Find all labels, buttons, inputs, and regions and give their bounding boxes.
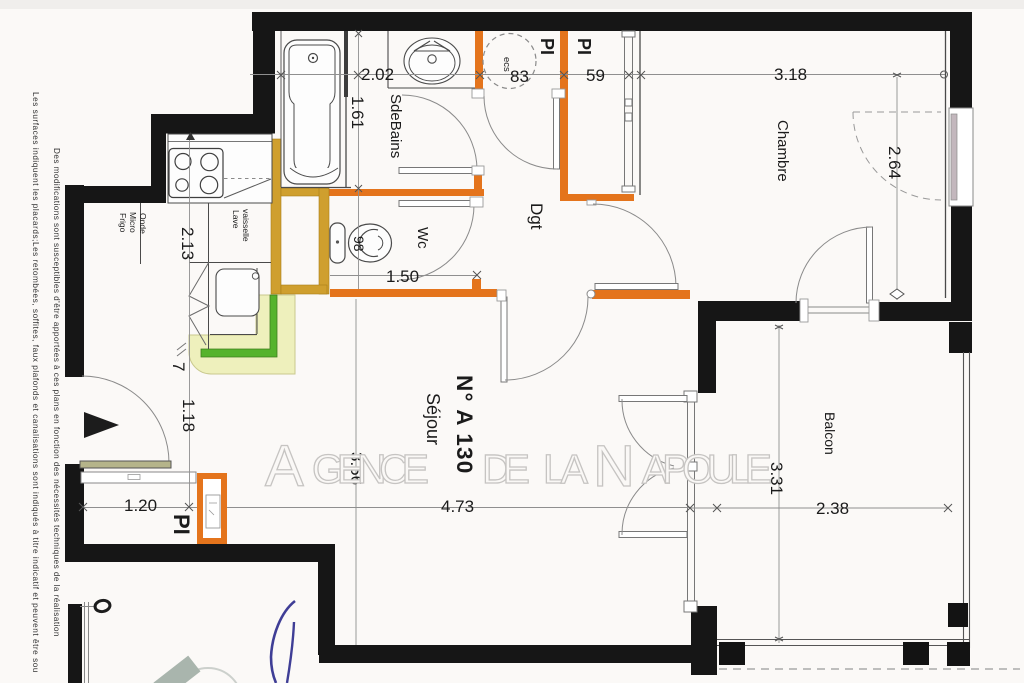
svg-text:Des modifications sont suscept: Des modifications sont susceptibles d'êt… (52, 148, 61, 637)
svg-text:1.50: 1.50 (386, 267, 419, 286)
svg-text:Lave: Lave (231, 210, 241, 229)
svg-text:vaisselle: vaisselle (241, 209, 251, 242)
svg-text:N: N (593, 434, 635, 499)
svg-text:Frigo: Frigo (118, 213, 128, 233)
svg-text:2.02: 2.02 (361, 65, 394, 84)
svg-text:ecs: ecs (501, 57, 512, 72)
svg-text:A: A (265, 434, 304, 499)
svg-text:98: 98 (351, 236, 367, 252)
svg-text:N° A 130: N° A 130 (452, 375, 477, 474)
svg-text:Dgt: Dgt (527, 203, 546, 230)
svg-text:PI: PI (169, 514, 194, 535)
svg-text:2.64: 2.64 (885, 146, 904, 179)
svg-text:59: 59 (586, 66, 605, 85)
svg-text:2.13: 2.13 (178, 227, 197, 260)
svg-text:1.61: 1.61 (348, 96, 367, 129)
svg-text:PI: PI (574, 38, 594, 55)
svg-text:LA: LA (543, 446, 589, 492)
svg-text:Micro: Micro (128, 212, 138, 233)
svg-text:1.20: 1.20 (124, 496, 157, 515)
svg-text:Chambre: Chambre (774, 120, 791, 182)
svg-text:Wc: Wc (414, 227, 431, 249)
svg-text:Onde: Onde (138, 213, 148, 234)
svg-text:GENCE: GENCE (312, 446, 429, 492)
svg-text:DE: DE (482, 446, 530, 492)
svg-text:SdeBains: SdeBains (387, 94, 404, 158)
svg-text:Les surfaces indiquent les pla: Les surfaces indiquent les placards;Les … (31, 92, 40, 673)
svg-text:2.38: 2.38 (816, 499, 849, 518)
svg-text:1.18: 1.18 (179, 399, 198, 432)
svg-text:4.73: 4.73 (441, 497, 474, 516)
svg-text:PI: PI (537, 38, 557, 55)
svg-text:Séjour: Séjour (423, 393, 443, 445)
svg-text:7: 7 (169, 362, 188, 371)
svg-text:APOULE: APOULE (642, 446, 772, 492)
svg-text:Balcon: Balcon (822, 412, 838, 455)
svg-text:3.18: 3.18 (774, 65, 807, 84)
